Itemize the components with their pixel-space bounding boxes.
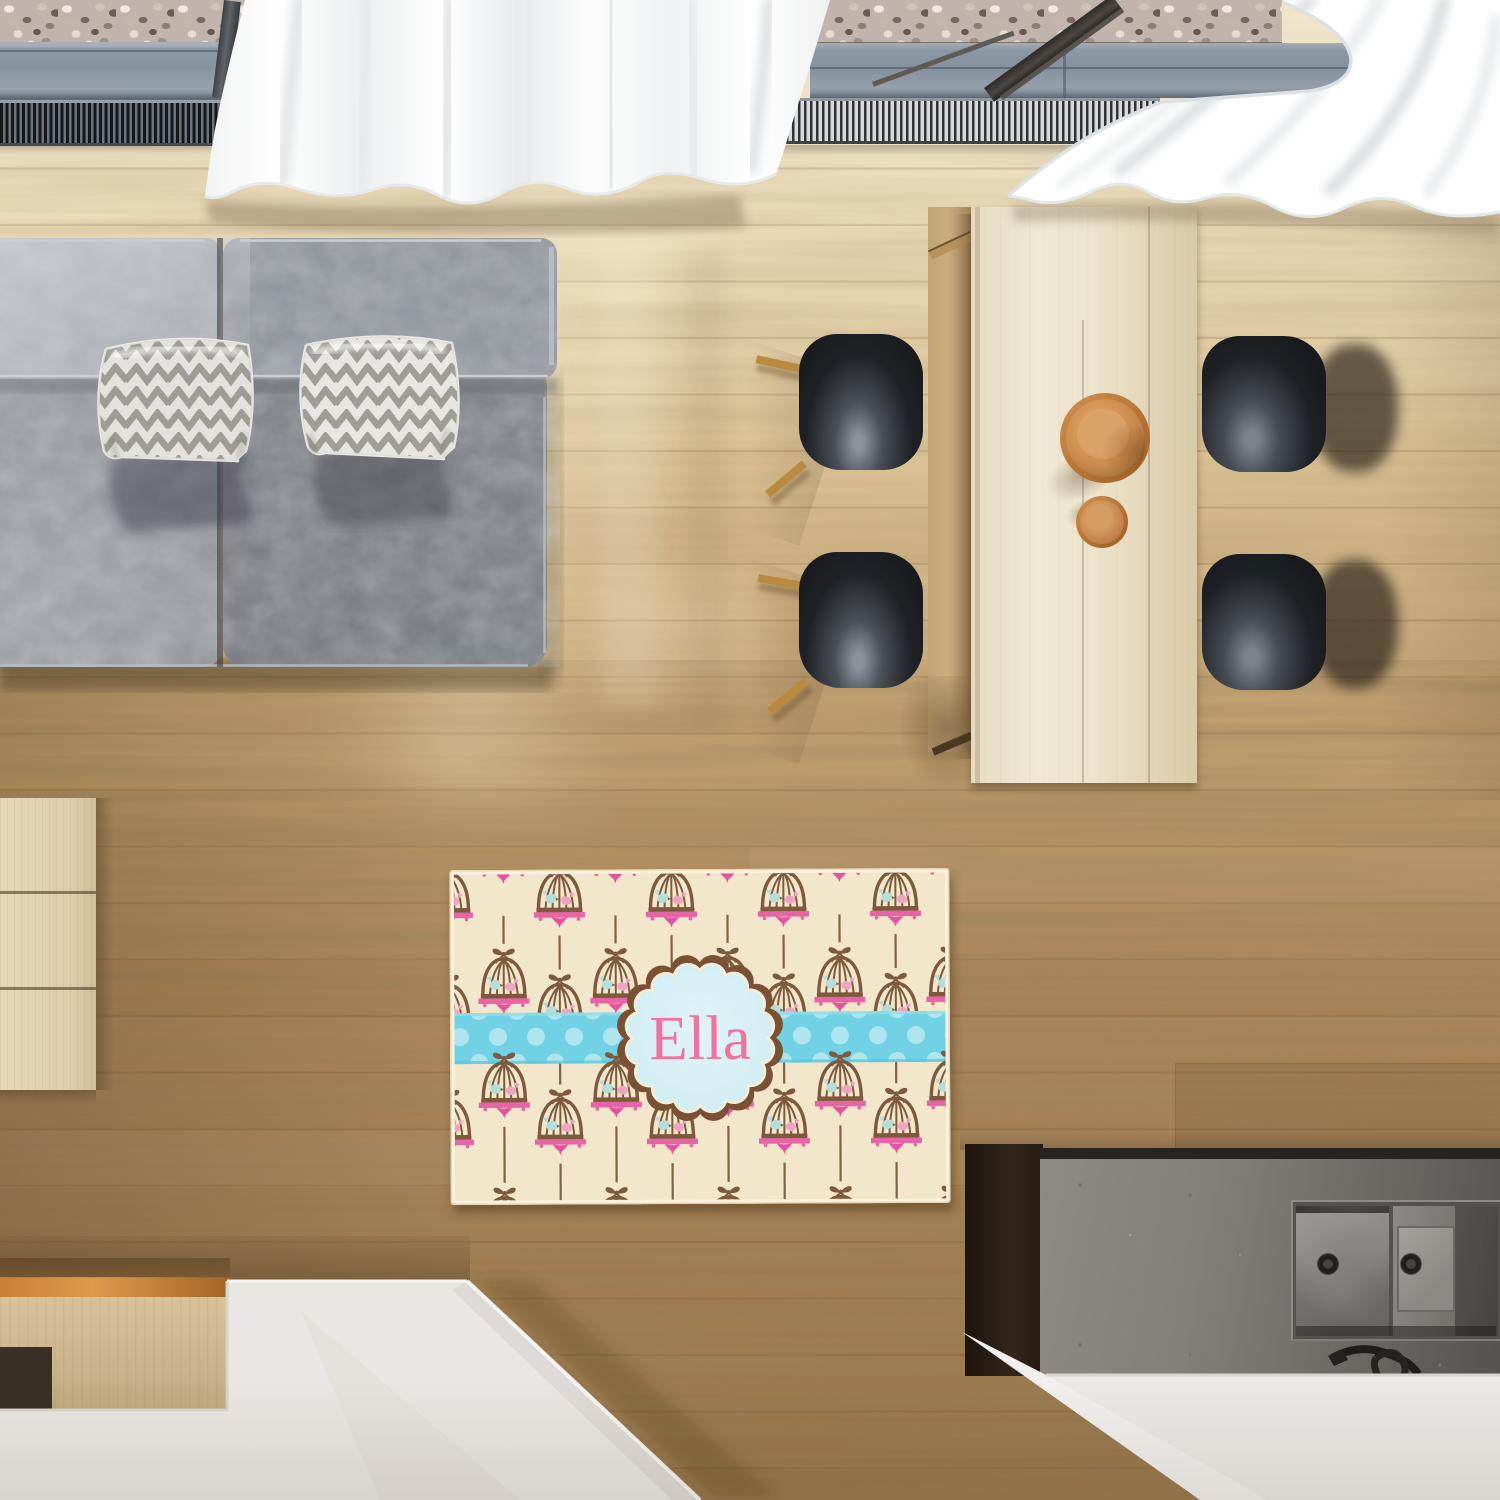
svg-text:Ella: Ella	[649, 1003, 751, 1073]
